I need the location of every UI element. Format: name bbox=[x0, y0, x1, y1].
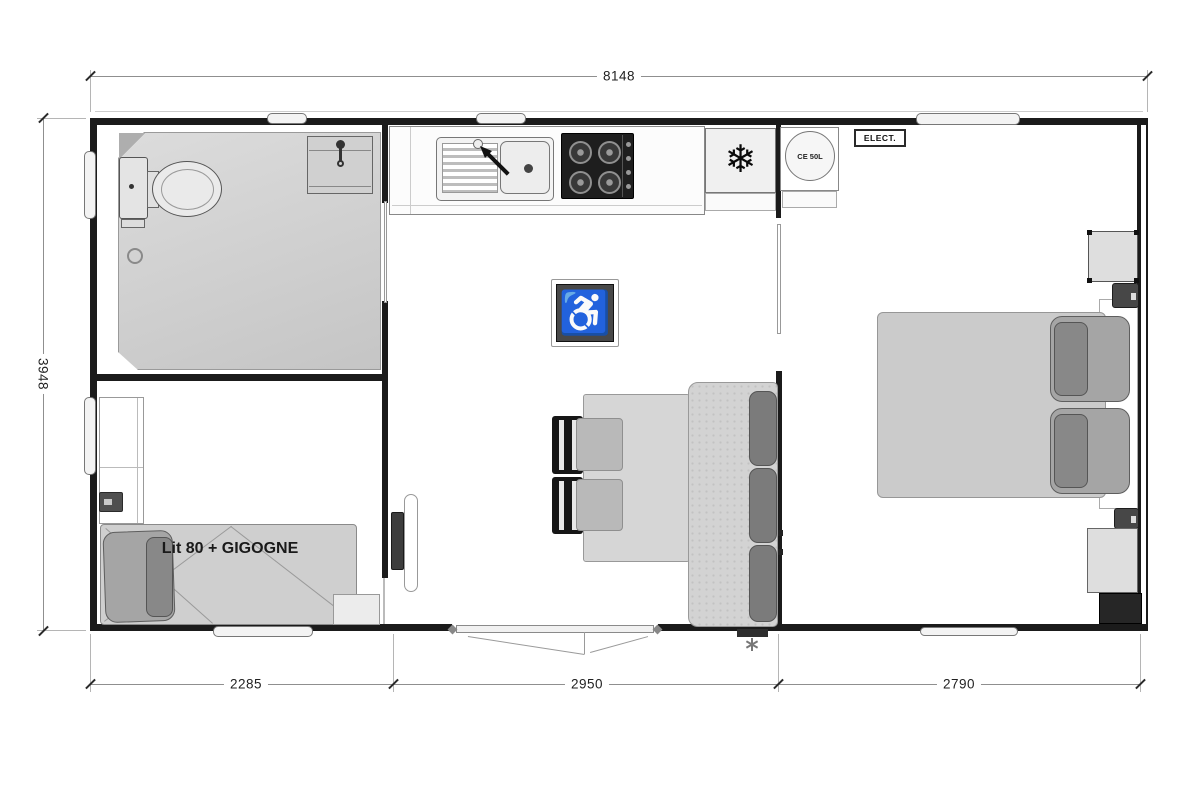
chair-back-slats bbox=[559, 481, 577, 530]
sofa-cushion bbox=[749, 468, 777, 543]
device-slot bbox=[1131, 516, 1136, 523]
chair-seat bbox=[576, 418, 623, 471]
bathroom-right-wall-upper bbox=[382, 125, 388, 203]
water-heater-base bbox=[782, 191, 837, 208]
bathroom-right-wall-lower bbox=[382, 301, 388, 381]
dim-label-overall-depth: 3948 bbox=[36, 354, 51, 394]
threshold-vent bbox=[737, 629, 768, 637]
bedroom1-door-leaf bbox=[383, 578, 385, 624]
stove-burner bbox=[598, 171, 621, 194]
roof-edge-line bbox=[95, 111, 1143, 112]
dim-label-bottom-right: 2790 bbox=[937, 677, 981, 692]
device-slot bbox=[1131, 293, 1136, 300]
bed-label: Lit 80 + GIGOGNE bbox=[162, 540, 298, 558]
electric-panel: ELECT. bbox=[854, 129, 906, 147]
wall-hinge-mark bbox=[778, 530, 783, 536]
sofa-cushion bbox=[749, 391, 777, 466]
tv-swivel-outline bbox=[404, 494, 418, 592]
sofa-cushion bbox=[749, 545, 777, 622]
window-bottom-bedroom1 bbox=[213, 626, 313, 637]
water-heater: CE 50L bbox=[785, 131, 835, 181]
freezer-icon: ❄ bbox=[705, 128, 776, 193]
shower-drain bbox=[127, 248, 143, 264]
wall-hinge-mark bbox=[778, 549, 783, 555]
toilet-base bbox=[121, 219, 145, 228]
entrance-door-panels bbox=[456, 625, 654, 633]
tv-screen bbox=[391, 512, 404, 570]
corner-shower-shelf bbox=[119, 133, 145, 159]
corner-dot bbox=[1087, 278, 1092, 283]
counter-front-line bbox=[392, 205, 702, 206]
sink-drain bbox=[524, 164, 533, 173]
heater-unit bbox=[99, 492, 123, 512]
window-top-bathroom bbox=[267, 113, 307, 124]
dim-label-bottom-middle: 2950 bbox=[565, 677, 609, 692]
window-left-bathroom bbox=[84, 151, 96, 219]
stove-panel-divider bbox=[622, 135, 623, 197]
pillow-inner bbox=[1054, 322, 1088, 396]
door-swing-line bbox=[468, 636, 585, 655]
window-left-bedroom1 bbox=[84, 397, 96, 475]
counter-end-line bbox=[410, 127, 411, 214]
door-meeting-line bbox=[584, 632, 585, 654]
nightstand bbox=[1087, 528, 1138, 593]
stove-burner bbox=[569, 171, 592, 194]
toilet-flush-button bbox=[129, 184, 134, 189]
window-top-kitchen bbox=[476, 113, 526, 124]
wall-device bbox=[1112, 283, 1139, 308]
dim-label-overall-width: 8148 bbox=[597, 69, 641, 84]
bathroom-bottom-wall bbox=[97, 374, 388, 381]
basin-faucet-icon bbox=[337, 160, 344, 167]
stove-knob bbox=[626, 156, 631, 161]
corner-dot bbox=[1134, 230, 1139, 235]
floor-plan: 8148 3948 2285 2950 2790 bbox=[0, 0, 1200, 800]
toilet-bowl-inner bbox=[161, 169, 214, 210]
wheelchair-icon: ♿ bbox=[556, 284, 614, 342]
stove-burner bbox=[569, 141, 592, 164]
stove-knob bbox=[626, 142, 631, 147]
chair-seat bbox=[576, 479, 623, 531]
stove-knob bbox=[626, 170, 631, 175]
pillow-inner bbox=[1054, 414, 1088, 488]
wardrobe-door-line bbox=[137, 398, 138, 523]
stove-burner bbox=[598, 141, 621, 164]
chair-back-slats bbox=[559, 420, 577, 470]
storage-box bbox=[1099, 593, 1142, 624]
bathroom-sliding-door bbox=[384, 201, 387, 303]
nightstand bbox=[1088, 231, 1138, 282]
bed-step bbox=[333, 594, 380, 625]
corner-dot bbox=[1087, 230, 1092, 235]
stove-knob bbox=[626, 184, 631, 189]
heater-vent bbox=[104, 499, 112, 505]
bedroom2-door-leaf bbox=[777, 224, 781, 334]
wall-device bbox=[1114, 508, 1139, 529]
dim-label-bottom-left: 2285 bbox=[224, 677, 268, 692]
door-swing-line bbox=[590, 636, 648, 653]
washbasin-edge-line bbox=[309, 186, 371, 187]
window-top-bedroom2 bbox=[916, 113, 1020, 125]
gas-stove bbox=[561, 133, 634, 199]
freezer-base-cabinet bbox=[705, 193, 776, 211]
bedroom1-right-wall bbox=[382, 381, 388, 578]
window-bottom-bedroom2 bbox=[920, 627, 1018, 636]
